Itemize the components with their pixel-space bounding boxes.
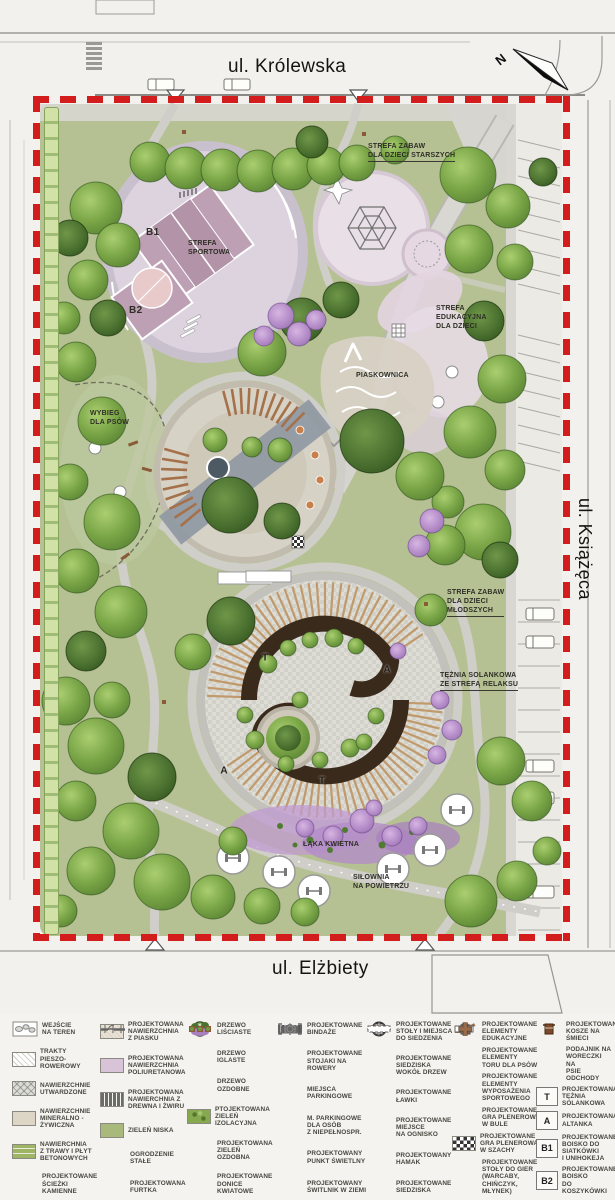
legend-item-label: PROJEKTOWANE BOISKO DO SIATKÓWKI I UNIHO… bbox=[562, 1134, 615, 1163]
stone-path-icon bbox=[12, 1176, 38, 1192]
legend-item-label: DRZEWO OZDOBNE bbox=[217, 1078, 250, 1092]
legend-item: PROJEKTOWANA FURTKA bbox=[100, 1179, 194, 1195]
legend-item: PROJEKTOWANE ŁAWKI bbox=[366, 1089, 458, 1105]
legend-item: M. PARKINGOWE DLA OSÓB Z NIEPEŁNOSPR. bbox=[277, 1115, 371, 1137]
zone-label-court-b1: B1 bbox=[146, 226, 160, 239]
legend-item-label: OGRODZENIE STAŁE bbox=[130, 1151, 174, 1165]
tree-conifer-icon bbox=[187, 1049, 213, 1065]
key-box-icon: A bbox=[536, 1111, 558, 1130]
site-boundary-top bbox=[33, 96, 570, 103]
polyurethane-icon bbox=[100, 1058, 124, 1073]
green-ornamental-icon bbox=[187, 1142, 213, 1158]
legend-item-label: PROJEKTOWANA NAWIERZCHNIA POLIURETANOWA bbox=[128, 1055, 186, 1077]
legend-column-1: WEJŚCIE NA TERENTRAKTY PIESZO-ROWEROWYNA… bbox=[12, 1021, 100, 1195]
zone-label-piaskownica: PIASKOWNICA bbox=[356, 371, 409, 380]
zone-label-strefa-zabaw-dzieci-starszych: STREFA ZABAW DLA DZIECI STARSZYCH bbox=[368, 142, 455, 162]
legend-item: PROJEKTOWANY HAMAK bbox=[366, 1151, 458, 1167]
legend-item: TRAKTY PIESZO-ROWEROWY bbox=[12, 1048, 100, 1070]
legend-item: PROJEKTOWANE ELEMENTY TORU DLA PSÓW bbox=[452, 1047, 548, 1069]
mineral-icon bbox=[12, 1111, 36, 1126]
legend-item-label: PROJEKTOWANA NAWIERCHNIA Z DREWNA I ŻWIR… bbox=[128, 1089, 184, 1111]
legend-item: PROJEKTOWANE SIEDZISKA WOKÓŁ DRZEW bbox=[366, 1055, 458, 1077]
legend-item-label: PROJEKTOWANE SIEDZISKA WOKÓŁ DRZEW bbox=[396, 1055, 451, 1077]
key-box-icon: B1 bbox=[536, 1139, 558, 1158]
legend-item: OGRODZENIE STAŁE bbox=[100, 1150, 194, 1166]
legend-item: PROJEKTOWANE GRA PLENEROWA W SZACHY bbox=[452, 1133, 548, 1155]
parked-cars-street bbox=[148, 79, 250, 90]
tree-ornamental-icon bbox=[187, 1078, 213, 1094]
legend-item-label: PROJEKTOWANE ELEMENTY TORU DLA PSÓW bbox=[482, 1047, 537, 1069]
light-point-icon bbox=[277, 1150, 303, 1166]
legend-item-label: PROJEKTOWANA ALTANKA bbox=[562, 1113, 615, 1127]
legend-item: DRZEWO OZDOBNE bbox=[187, 1078, 275, 1094]
isolation-hedge bbox=[44, 107, 59, 935]
dog-course-icon bbox=[452, 1050, 478, 1066]
legend-item: PROJEKTOWANY ŚWITLNIK W ZIEMI bbox=[277, 1179, 371, 1195]
legend-item-label: NAWIERCHNIA Z TRAWY I PŁYT BETONOWYCH bbox=[40, 1141, 92, 1163]
legend-item-label: PROJEKTOWANA TĘŻNIA SOLANKOWA bbox=[562, 1086, 615, 1108]
legend-item: PROJEKTOWANE ELEMENTY WYPOSAŻENIA SPORTO… bbox=[452, 1073, 548, 1102]
zone-label-wybieg-dla-psow: WYBIEG DLA PSÓW bbox=[90, 409, 129, 427]
legend-item-label: PODAJNIK NA WORECZKI NA PSIE ODCHODY bbox=[566, 1046, 612, 1082]
legend-item: PTOJEKTOWANA ZIELEŃ IZOLACYJNA bbox=[187, 1106, 275, 1128]
dog-bags-icon bbox=[536, 1056, 562, 1072]
zone-label-laka-kwietna: ŁĄKA KWIETNA bbox=[303, 840, 359, 849]
legend-item-label: PROJEKTOWANA NAWIERZCHNIA Z PIASKU bbox=[128, 1021, 184, 1043]
legend-item: TPROJEKTOWANA TĘŻNIA SOLANKOWA bbox=[536, 1086, 612, 1108]
legend-item-label: ZIELEŃ NISKA bbox=[128, 1127, 174, 1134]
street-label-krolewska: ul. Królewska bbox=[228, 56, 346, 78]
seats-row-icon bbox=[366, 1179, 392, 1195]
legend-item: B2PROJEKTOWANE BOISKO DO KOSZYKÓWKI bbox=[536, 1166, 612, 1195]
legend-item-label: PROJEKTOWANE BINDAŻE bbox=[307, 1022, 362, 1036]
plaza-letter-a: A bbox=[383, 665, 390, 676]
legend-item: ZIELEŃ NISKA bbox=[100, 1123, 194, 1138]
planters-icon bbox=[187, 1176, 213, 1192]
key-box-icon: T bbox=[536, 1087, 558, 1106]
zone-label-court-b2: B2 bbox=[129, 304, 143, 317]
zone-label-strefa-edukacyjna-dla-dzieci: STREFA EDUKACYJNA DLA DZIECI bbox=[436, 304, 487, 331]
gate-icon bbox=[100, 1179, 126, 1195]
game-tables-icon bbox=[452, 1169, 478, 1185]
grass-slabs-icon bbox=[12, 1144, 36, 1159]
crosshatch-icon bbox=[12, 1081, 36, 1096]
bike-racks-icon bbox=[277, 1053, 303, 1069]
legend-column-2: PROJEKTOWANA NAWIERZCHNIA Z PIASKUPROJEK… bbox=[100, 1021, 194, 1195]
legend-item: PROJEKTOWANA NAWIERCHNIA Z DREWNA I ŻWIR… bbox=[100, 1089, 194, 1111]
hatch-path-icon bbox=[12, 1052, 36, 1067]
legend-item-label: M. PARKINGOWE DLA OSÓB Z NIEPEŁNOSPR. bbox=[307, 1115, 362, 1137]
legend-column-3: DRZEWO LIŚCIASTEDRZEWO IGLASTEDRZEWO OZD… bbox=[187, 1021, 275, 1195]
chess-court-icon bbox=[292, 536, 304, 548]
sport-equipment-icon bbox=[452, 1080, 478, 1096]
legend-item: PROJEKTOWANA ZIELEŃ OZDOBNA bbox=[187, 1140, 275, 1162]
legend-item: PROJEKTOWANE SIEDZISKA bbox=[366, 1179, 458, 1195]
legend-column-7: PROJEKTOWANE KOSZE NA ŚMIECIPODAJNIK NA … bbox=[536, 1021, 612, 1195]
legend-item-label: NAWIERZCHNIE UTWARDZONE bbox=[40, 1082, 91, 1096]
legend-item-label: PROJEKTOWANE STOŁY I MIEJSCA DO SIEDZENI… bbox=[396, 1021, 452, 1043]
legend-column-4: PROJEKTOWANE BINDAŻEPROJEKTOWANE STOJAKI… bbox=[277, 1021, 371, 1195]
legend-item: PROJEKTOWANE STOŁY DO GIER (WARCABY, CHI… bbox=[452, 1159, 548, 1195]
bench-icon bbox=[366, 1089, 392, 1105]
legend-item-label: PROJEKTOWANA ZIELEŃ OZDOBNA bbox=[217, 1140, 275, 1162]
ground-light-icon bbox=[277, 1179, 303, 1195]
legend-item: NAWIERCHNIA Z TRAWY I PŁYT BETONOWYCH bbox=[12, 1141, 100, 1163]
key-box-icon: B2 bbox=[536, 1171, 558, 1190]
street-label-elzbiety: ul. Elżbiety bbox=[272, 958, 369, 980]
hammock-icon bbox=[366, 1151, 392, 1167]
legend-item: PROJEKTOWANY PUNKT ŚWIETLNY bbox=[277, 1150, 371, 1166]
legend-column-6: PROJEKTOWANE ELEMENTY EDUKACYJNEPROJEKTO… bbox=[452, 1021, 548, 1195]
legend-item: MIEJSCA PARKINGOWE bbox=[277, 1085, 371, 1101]
legend-item: APROJEKTOWANA ALTANKA bbox=[536, 1111, 612, 1130]
legend-item-label: MIEJSCA PARKINGOWE bbox=[307, 1086, 352, 1100]
legend-item-label: PROJEKTOWANE BOISKO DO KOSZYKÓWKI bbox=[562, 1166, 615, 1195]
legend-item-label: PROJEKTOWANE ŚCIEŻKI KAMIENNE bbox=[42, 1173, 97, 1195]
legend-item: B1PROJEKTOWANE BOISKO DO SIATKÓWKI I UNI… bbox=[536, 1134, 612, 1163]
zone-label-strefa-sportowa: STREFA SPORTOWA bbox=[188, 239, 230, 257]
legend-item-label: NAWIERZCHNIE MINERALNO - ŻYWICZNA bbox=[40, 1108, 91, 1130]
legend-item: PROJEKTOWANE GRA PLENEROWA W BULE bbox=[452, 1107, 548, 1129]
legend-item-label: PROJEKTOWANY HAMAK bbox=[396, 1152, 451, 1166]
north-arrow bbox=[513, 49, 568, 90]
legend-item-label: PROJEKTOWANE ŁAWKI bbox=[396, 1089, 451, 1103]
chess-icon bbox=[452, 1136, 476, 1151]
legend-item-label: PTOJEKTOWANA ZIELEŃ IZOLACYJNA bbox=[215, 1106, 275, 1128]
legend-item-label: DRZEWO LIŚCIASTE bbox=[217, 1022, 251, 1036]
green-low-icon bbox=[100, 1123, 124, 1138]
legend-item-label: WEJŚCIE NA TEREN bbox=[42, 1022, 75, 1036]
fence-icon bbox=[100, 1150, 126, 1166]
legend-item: NAWIERZCHNIE MINERALNO - ŻYWICZNA bbox=[12, 1108, 100, 1130]
legend-item: PROJEKTOWANA NAWIERZCHNIA POLIURETANOWA bbox=[100, 1055, 194, 1077]
legend-item-label: TRAKTY PIESZO-ROWEROWY bbox=[40, 1048, 100, 1070]
legend-item: NAWIERZCHNIE UTWARDZONE bbox=[12, 1081, 100, 1096]
site-boundary-right bbox=[563, 96, 570, 941]
legend-item-label: PROJEKTOWANE GRA PLENEROWA W SZACHY bbox=[480, 1133, 538, 1155]
parking-icon bbox=[277, 1085, 303, 1101]
fire-pit-icon bbox=[366, 1120, 392, 1136]
legend-item: PROJEKTOWANE MIEJSCE NA OGNISKO bbox=[366, 1117, 458, 1139]
legend-item: PODAJNIK NA WORECZKI NA PSIE ODCHODY bbox=[536, 1046, 612, 1082]
zone-label-teznia-solankowa: TĘŻNIA SOLANKOWA ZE STREFĄ RELAKSU bbox=[440, 671, 518, 691]
legend-item-label: PROJEKTOWANE ELEMENTY EDUKACYJNE bbox=[482, 1021, 537, 1043]
legend-item: DRZEWO IGLASTE bbox=[187, 1049, 275, 1065]
legend-item-label: PROJEKTOWANE STOJAKI NA ROWERY bbox=[307, 1050, 362, 1072]
tree-seat-icon bbox=[366, 1058, 392, 1074]
legend-item-label: PROJEKTOWANE MIEJSCE NA OGNISKO bbox=[396, 1117, 451, 1139]
park-masterplan: ul. Królewska ul. Książęca ul. Elżbiety … bbox=[0, 0, 615, 1200]
plaza-letter-a: A bbox=[220, 766, 227, 777]
plaza-letter-t: T bbox=[262, 653, 268, 664]
legend-item-label: PROJEKTOWANE ELEMENTY WYPOSAŻENIA SPORTO… bbox=[482, 1073, 537, 1102]
zone-label-strefa-zabaw-dzieci-mlodszych: STREFA ZABAW DLA DZIECI MŁODSZYCH bbox=[447, 588, 504, 617]
legend-item-label: DRZEWO IGLASTE bbox=[217, 1050, 246, 1064]
legend-column-5: PROJEKTOWANE STOŁY I MIEJSCA DO SIEDZENI… bbox=[366, 1021, 458, 1195]
legend-item-label: PROJEKTOWANE SIEDZISKA bbox=[396, 1180, 451, 1194]
legend-item-label: PROJEKTOWANA FURTKA bbox=[130, 1180, 186, 1194]
legend-item-label: PROJEKTOWANE GRA PLENEROWA W BULE bbox=[482, 1107, 540, 1129]
parking-disabled-icon bbox=[277, 1117, 303, 1133]
street-label-ksiazeca: ul. Książęca bbox=[574, 498, 595, 600]
legend-item: PROJEKTOWANE ŚCIEŻKI KAMIENNE bbox=[12, 1173, 100, 1195]
boules-icon bbox=[452, 1109, 478, 1125]
legend-item-label: PROJEKTOWANY PUNKT ŚWIETLNY bbox=[307, 1150, 365, 1164]
site-boundary-bottom bbox=[33, 934, 570, 941]
legend-item-label: PROJEKTOWANE KOSZE NA ŚMIECI bbox=[566, 1021, 615, 1043]
crosswalk bbox=[86, 42, 102, 70]
legend-item-label: PROJEKTOWANY ŚWITLNIK W ZIEMI bbox=[307, 1180, 366, 1194]
zone-label-silownia-na-powietrzu: SIŁOWNIA NA POWIETRZU bbox=[353, 873, 409, 891]
green-isolation-icon bbox=[187, 1109, 211, 1124]
legend-item: PROJEKTOWANE DONICE KWIATOWE bbox=[187, 1173, 275, 1195]
legend-item: PROJEKTOWANE STOJAKI NA ROWERY bbox=[277, 1050, 371, 1072]
wood-gravel-icon bbox=[100, 1092, 124, 1107]
plaza-letter-t: T bbox=[319, 776, 325, 787]
site-boundary-left bbox=[33, 96, 40, 941]
legend-item-label: PROJEKTOWANE DONICE KWIATOWE bbox=[217, 1173, 272, 1195]
